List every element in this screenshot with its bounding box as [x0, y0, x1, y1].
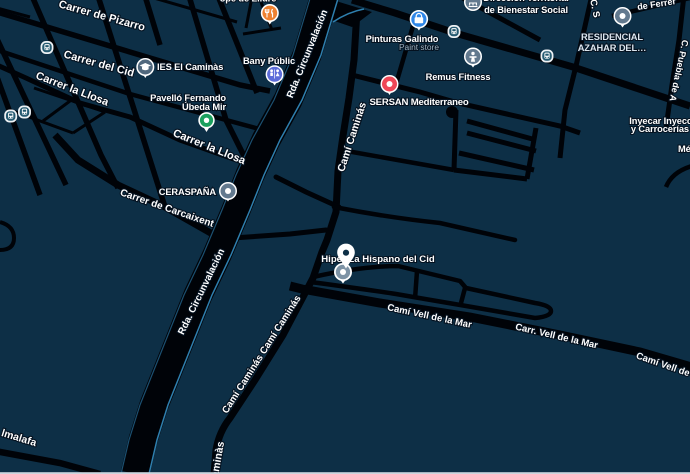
- svg-text:de Bienestar Social: de Bienestar Social: [484, 5, 568, 15]
- svg-text:AZAHAR DEL…: AZAHAR DEL…: [578, 43, 647, 53]
- svg-text:CERASPAÑA: CERASPAÑA: [159, 187, 217, 197]
- svg-text:Paint store: Paint store: [399, 42, 439, 52]
- svg-text:Mé: Mé: [678, 144, 690, 154]
- svg-text:Dirección Territorial: Dirección Territorial: [483, 0, 569, 3]
- svg-text:SERSAN Mediterraneo: SERSAN Mediterraneo: [369, 97, 468, 108]
- svg-text:ope de Lliure: ope de Lliure: [220, 0, 277, 4]
- svg-text:y Carrocerías: y Carrocerías: [631, 124, 689, 134]
- svg-text:Úbeda Mir: Úbeda Mir: [182, 101, 227, 112]
- svg-text:Remus Fitness: Remus Fitness: [426, 72, 491, 82]
- svg-text:IES El Caminàs: IES El Caminàs: [157, 62, 223, 72]
- svg-text:Bany Públic: Bany Públic: [243, 56, 295, 66]
- svg-text:RESIDENCIAL: RESIDENCIAL: [581, 32, 643, 42]
